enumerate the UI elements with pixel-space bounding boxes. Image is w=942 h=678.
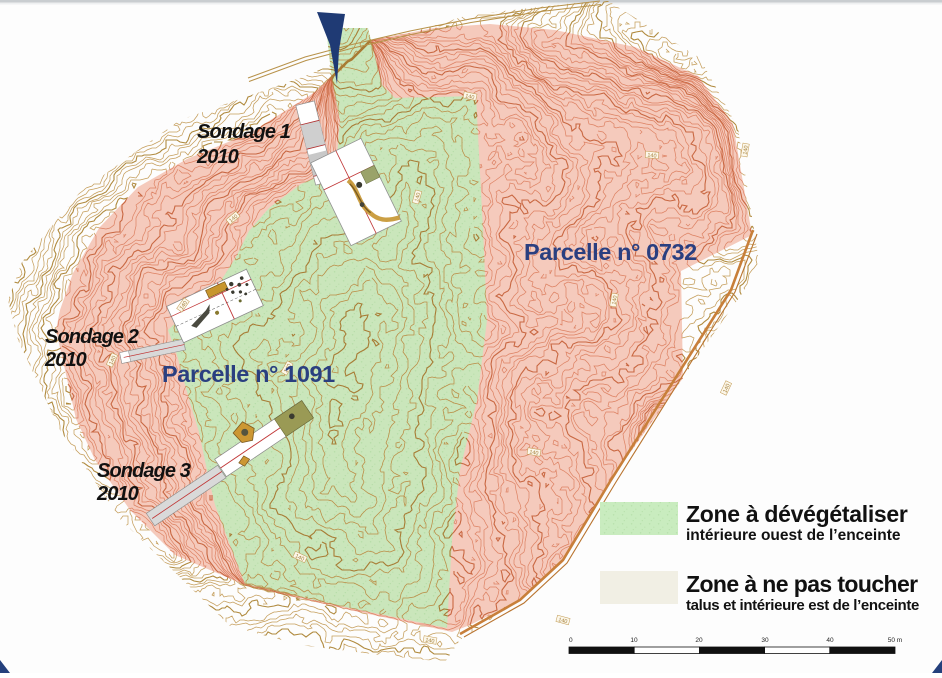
svg-text:intérieure ouest de l’enceinte: intérieure ouest de l’enceinte bbox=[686, 527, 901, 544]
svg-text:Zone à dévégétaliser: Zone à dévégétaliser bbox=[686, 501, 908, 527]
svg-text:50 m: 50 m bbox=[888, 637, 902, 644]
svg-text:Sondage 2: Sondage 2 bbox=[45, 326, 139, 348]
svg-text:20: 20 bbox=[695, 637, 703, 644]
svg-text:30: 30 bbox=[761, 637, 769, 644]
svg-text:0: 0 bbox=[569, 637, 573, 644]
svg-text:2010: 2010 bbox=[196, 146, 239, 168]
svg-text:Parcelle n° 1091: Parcelle n° 1091 bbox=[162, 361, 335, 387]
svg-text:10: 10 bbox=[630, 637, 638, 644]
svg-text:Sondage 3: Sondage 3 bbox=[97, 460, 191, 482]
svg-text:Parcelle n° 0732: Parcelle n° 0732 bbox=[524, 239, 697, 265]
svg-text:Zone à ne pas toucher: Zone à ne pas toucher bbox=[686, 571, 918, 597]
svg-text:Sondage 1: Sondage 1 bbox=[197, 121, 291, 143]
svg-text:2010: 2010 bbox=[44, 349, 87, 371]
svg-text:2010: 2010 bbox=[96, 483, 139, 505]
svg-text:40: 40 bbox=[826, 637, 834, 644]
svg-text:talus et intérieure est de l’e: talus et intérieure est de l’enceinte bbox=[686, 597, 919, 614]
svg-text:140: 140 bbox=[647, 153, 657, 160]
